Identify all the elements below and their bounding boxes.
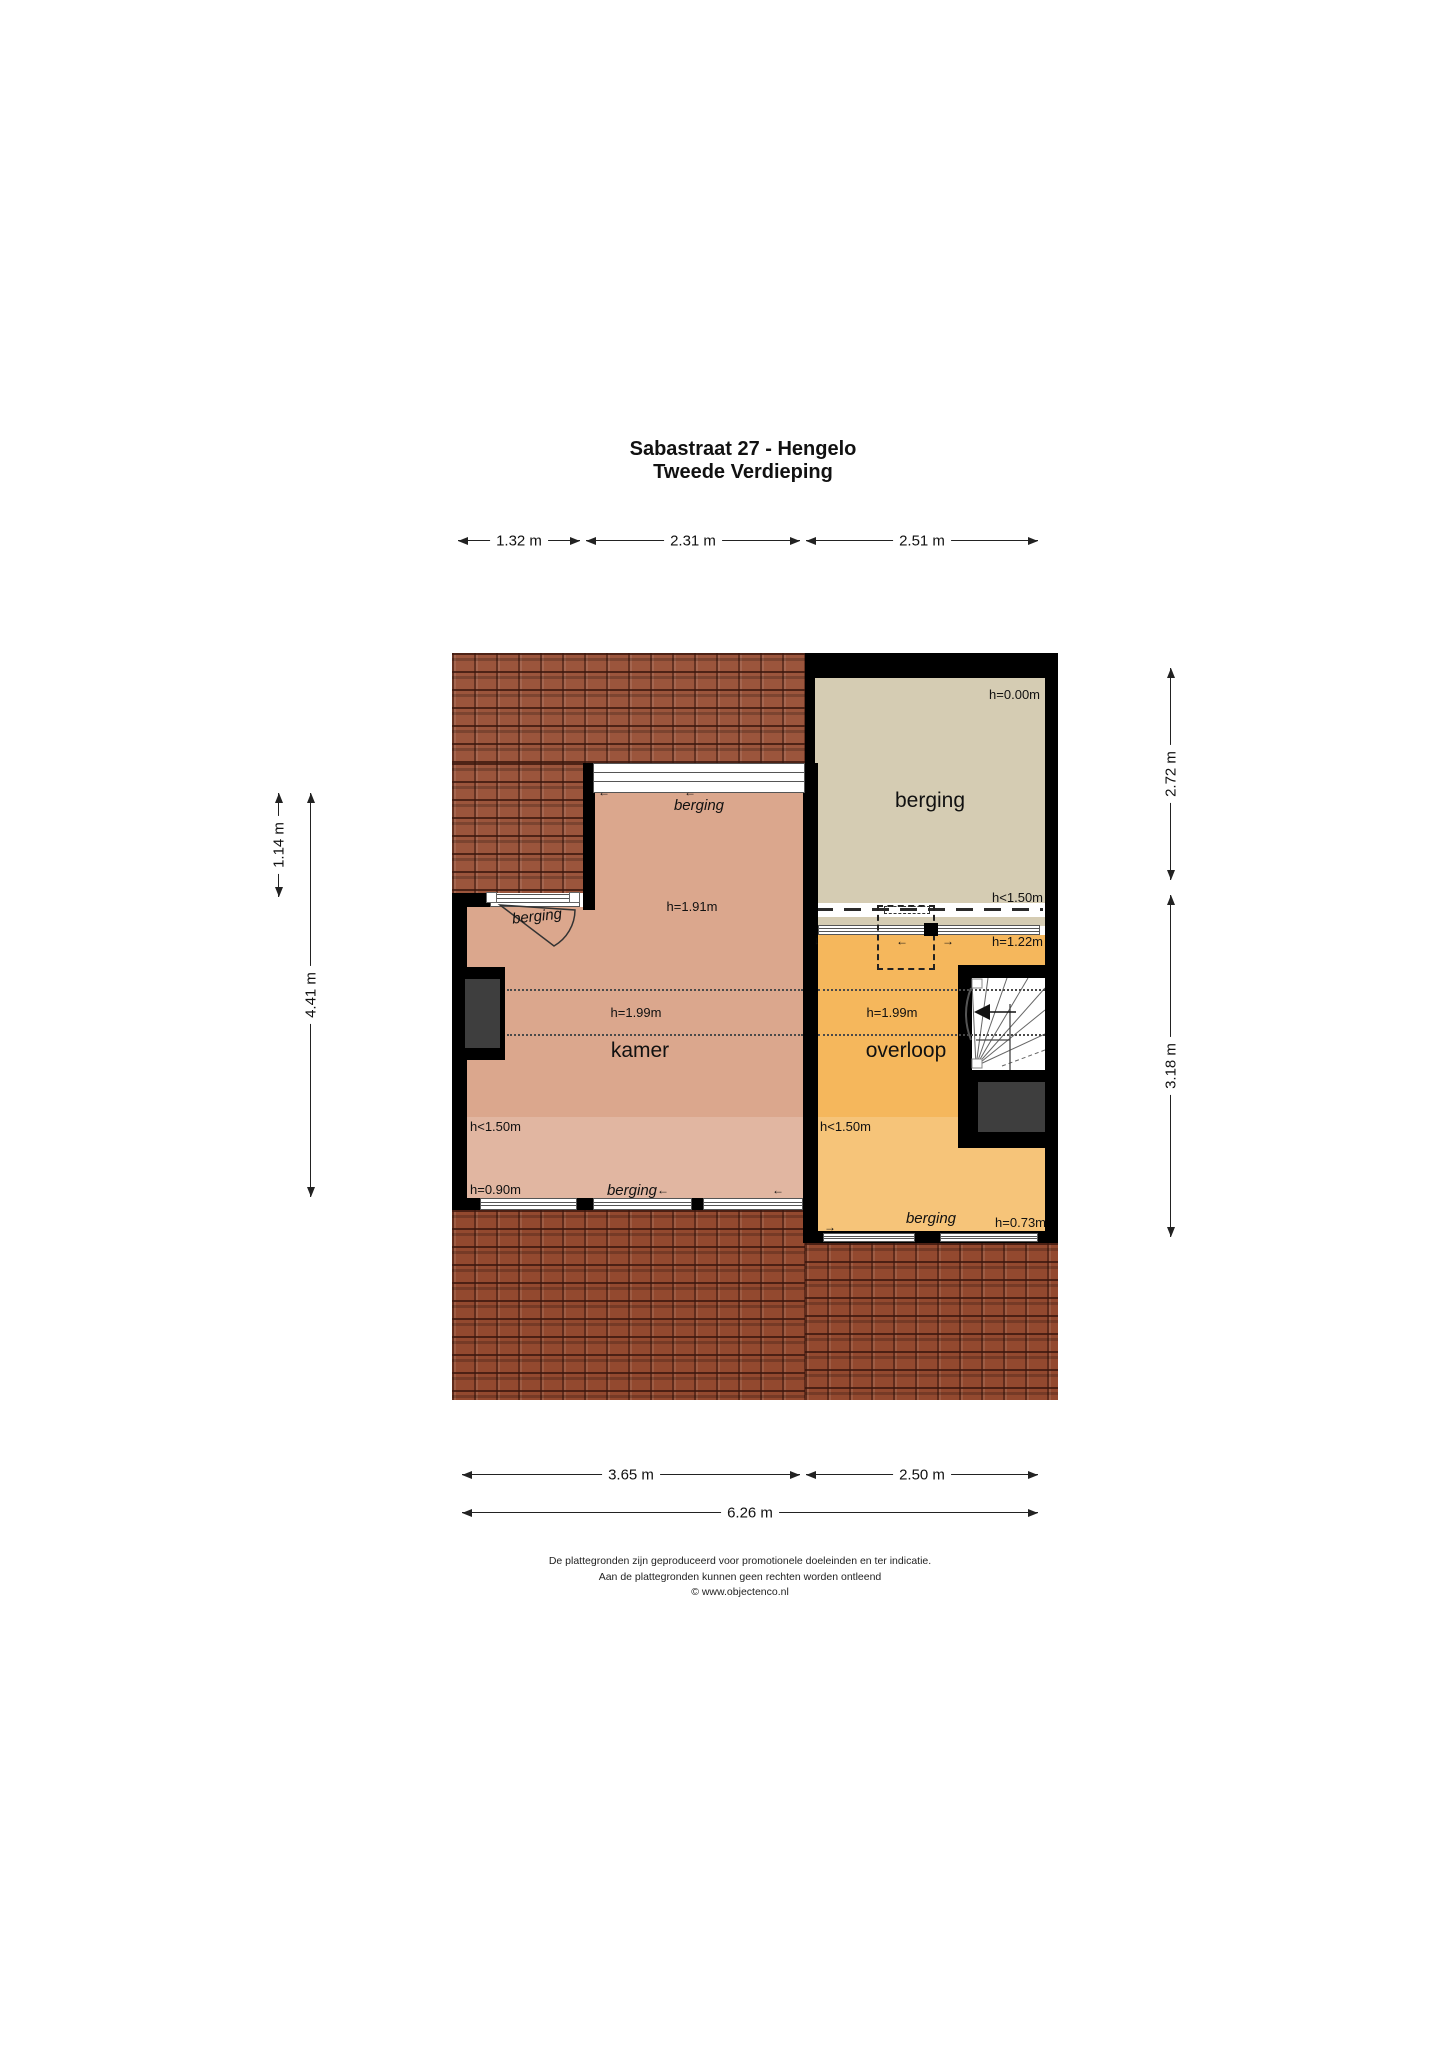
room-label-berging: berging: [855, 789, 1005, 813]
dimension-label: 3.65 m: [602, 1467, 660, 1484]
height-contour-line: [507, 1034, 803, 1036]
arrow-left-icon: ←: [896, 935, 908, 947]
footer-line: De plattegronden zijn geproduceerd voor …: [390, 1554, 1090, 1570]
height-contour-line: [818, 989, 1045, 991]
arrow-down-icon: ↓: [814, 935, 820, 947]
kamer-bottom-window-3: [703, 1198, 803, 1210]
height-label: h<1.50m: [820, 1119, 910, 1134]
dimension-label: 4.41 m: [302, 966, 321, 1024]
dimension-label: 1.32 m: [490, 533, 548, 550]
height-label: h<1.50m: [470, 1119, 560, 1134]
wall-right: [1045, 653, 1058, 1243]
height-label: h=1.91m: [642, 899, 742, 914]
footer-line: © www.objectenco.nl: [390, 1585, 1090, 1601]
roof-top-left: [452, 763, 583, 893]
floorplan-page: Sabastraat 27 - Hengelo Tweede Verdiepin…: [0, 0, 1449, 2048]
dimension-left-2: 4.41 m: [310, 793, 311, 1197]
window-label-berging: berging: [881, 1210, 981, 1227]
window-pier: [924, 923, 938, 936]
height-label: h<1.50m: [955, 890, 1043, 905]
room-label-overloop: overloop: [828, 1039, 984, 1063]
dimension-right-2: 3.18 m: [1170, 895, 1171, 1237]
height-contour-line: [818, 1034, 1045, 1036]
dimension-top-1: 1.32 m: [458, 540, 580, 541]
title-floor: Tweede Verdieping: [443, 461, 1043, 484]
dimension-label: 2.72 m: [1162, 745, 1181, 803]
dimension-left-1: 1.14 m: [278, 793, 279, 897]
height-label: h=1.22m: [955, 934, 1043, 949]
dimension-label: 3.18 m: [1162, 1037, 1181, 1095]
arrow-left-icon: ←: [772, 1184, 784, 1196]
dormer-dashed-inner: [884, 906, 930, 914]
overloop-bottom-pier: [915, 1231, 940, 1243]
stair-top-wall: [958, 965, 1058, 978]
chimney-shaft: [465, 979, 500, 1048]
height-label: h=0.00m: [955, 687, 1040, 702]
roof-top-band: [452, 653, 805, 763]
arrow-right-icon: →: [942, 935, 954, 947]
dimension-bottom-total: 6.26 m: [462, 1512, 1038, 1513]
arrow-left-icon: ←: [684, 786, 696, 798]
footer-line: Aan de plattegronden kunnen geen rechten…: [390, 1570, 1090, 1586]
wall-berging-west: [805, 672, 815, 765]
dimension-bottom-1: 3.65 m: [462, 1474, 800, 1475]
title-address: Sabastraat 27 - Hengelo: [443, 438, 1043, 461]
dimension-label: 1.14 m: [270, 816, 289, 874]
arrow-right-icon: →: [824, 1221, 836, 1233]
height-label: h=1.99m: [586, 1005, 686, 1020]
window-label-berging: berging: [647, 797, 751, 814]
page-title: Sabastraat 27 - Hengelo Tweede Verdiepin…: [443, 438, 1043, 484]
dimension-bottom-2: 2.50 m: [806, 1474, 1038, 1475]
wall-kamer-overloop: [803, 763, 818, 1243]
dimension-top-3: 2.51 m: [806, 540, 1038, 541]
dimension-right-1: 2.72 m: [1170, 668, 1171, 880]
arrow-left-icon: ←: [657, 1184, 669, 1196]
height-label: h=0.90m: [470, 1182, 560, 1197]
overloop-bottom-window-2: [940, 1233, 1038, 1242]
dimension-label: 6.26 m: [721, 1505, 779, 1522]
kamer-bottom-window-1: [480, 1198, 577, 1210]
arrow-left-icon: ←: [598, 786, 610, 798]
kamer-bottom-window-2: [593, 1198, 692, 1210]
roof-bottom-right: [805, 1243, 1058, 1400]
overloop-bottom-window-1: [823, 1233, 915, 1242]
height-label: h=1.99m: [842, 1005, 942, 1020]
dimension-top-2: 2.31 m: [586, 540, 800, 541]
dimension-label: 2.51 m: [893, 533, 951, 550]
stair-void-shaft: [978, 1082, 1045, 1132]
kamer-top-window: [593, 763, 805, 793]
height-contour-line: [507, 989, 803, 991]
room-label-kamer: kamer: [562, 1039, 718, 1063]
dimension-label: 2.31 m: [664, 533, 722, 550]
roof-bottom-left: [452, 1210, 805, 1400]
footer-disclaimer: De plattegronden zijn geproduceerd voor …: [390, 1554, 1090, 1601]
dimension-label: 2.50 m: [893, 1467, 951, 1484]
wall-berging-top: [805, 653, 1058, 678]
